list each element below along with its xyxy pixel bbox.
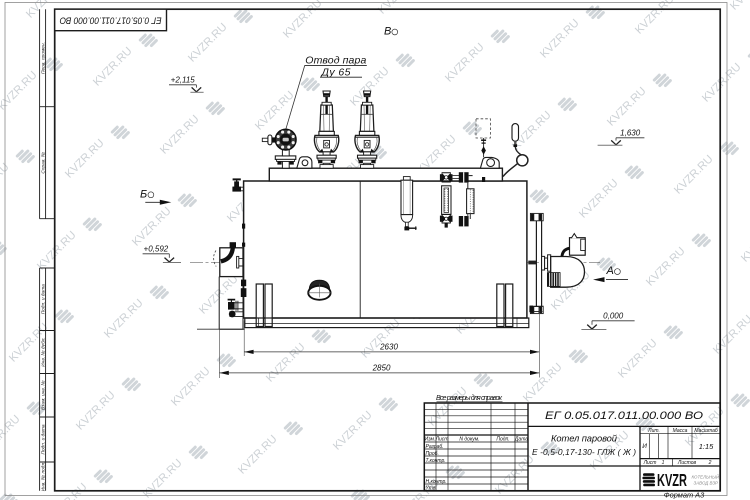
svg-text:+0,592: +0,592 — [144, 245, 169, 254]
svg-text:2850: 2850 — [372, 363, 391, 372]
svg-text:1:15: 1:15 — [699, 442, 714, 451]
svg-text:2630: 2630 — [379, 342, 398, 351]
svg-text:Изм.: Изм. — [425, 436, 436, 442]
svg-text:Формат А3: Формат А3 — [664, 490, 705, 499]
svg-text:Разраб.: Разраб. — [426, 444, 444, 450]
svg-text:Инв. № дубл.: Инв. № дубл. — [40, 337, 46, 367]
svg-text:KVZR: KVZR — [657, 470, 687, 490]
svg-text:Лит.: Лит. — [647, 428, 660, 434]
svg-text:Перв. примен.: Перв. примен. — [40, 42, 46, 74]
svg-text:Проб.: Проб. — [426, 451, 439, 457]
svg-text:Котел паровой: Котел паровой — [551, 433, 618, 444]
svg-text:ЕГ 0.05.017.011.00.000 ВО: ЕГ 0.05.017.011.00.000 ВО — [59, 14, 161, 25]
svg-text:Подп. и дата: Подп. и дата — [40, 284, 46, 314]
svg-text:ЗАВОД ВЗР: ЗАВОД ВЗР — [694, 481, 719, 486]
svg-text:Справ. №: Справ. № — [40, 152, 46, 174]
svg-text:Т.контр.: Т.контр. — [426, 458, 446, 464]
svg-text:1,630: 1,630 — [620, 129, 641, 138]
svg-text:Б: Б — [140, 189, 147, 201]
svg-text:Е -0,5-0,17-130- ГЛЖ ( Ж ): Е -0,5-0,17-130- ГЛЖ ( Ж ) — [532, 447, 636, 457]
svg-text:Дата: Дата — [514, 436, 528, 442]
svg-text:Отвод пара: Отвод пара — [305, 55, 366, 67]
svg-text:N докум.: N докум. — [459, 436, 479, 442]
svg-text:Листов: Листов — [677, 460, 697, 466]
svg-text:Подп.: Подп. — [496, 436, 509, 442]
svg-text:0,000: 0,000 — [603, 312, 624, 321]
svg-text:Все размеры для справок: Все размеры для справок — [436, 393, 503, 402]
svg-text:Масса: Масса — [673, 428, 688, 434]
svg-text:Лист: Лист — [643, 460, 657, 466]
svg-text:2: 2 — [708, 460, 712, 466]
svg-text:ЕГ 0.05.017.011.00.000 ВО: ЕГ 0.05.017.011.00.000 ВО — [545, 410, 703, 422]
svg-text:Лист: Лист — [435, 436, 449, 442]
svg-text:Н.контр.: Н.контр. — [426, 479, 447, 485]
svg-text:Подп. и дата: Подп. и дата — [40, 424, 46, 454]
svg-text:Взам. инв. №: Взам. инв. № — [40, 380, 46, 410]
svg-text:КОТЕЛЬНЫЙ: КОТЕЛЬНЫЙ — [692, 475, 720, 480]
svg-text:Инв. № подл.: Инв. № подл. — [40, 462, 46, 492]
svg-text:В: В — [384, 26, 391, 38]
svg-text:И: И — [642, 443, 647, 450]
svg-text:А: А — [606, 265, 614, 277]
svg-text:Утв.: Утв. — [426, 485, 437, 491]
svg-text:+2,115: +2,115 — [171, 76, 196, 85]
svg-text:1: 1 — [662, 460, 665, 466]
svg-text:Масштаб: Масштаб — [694, 428, 718, 434]
